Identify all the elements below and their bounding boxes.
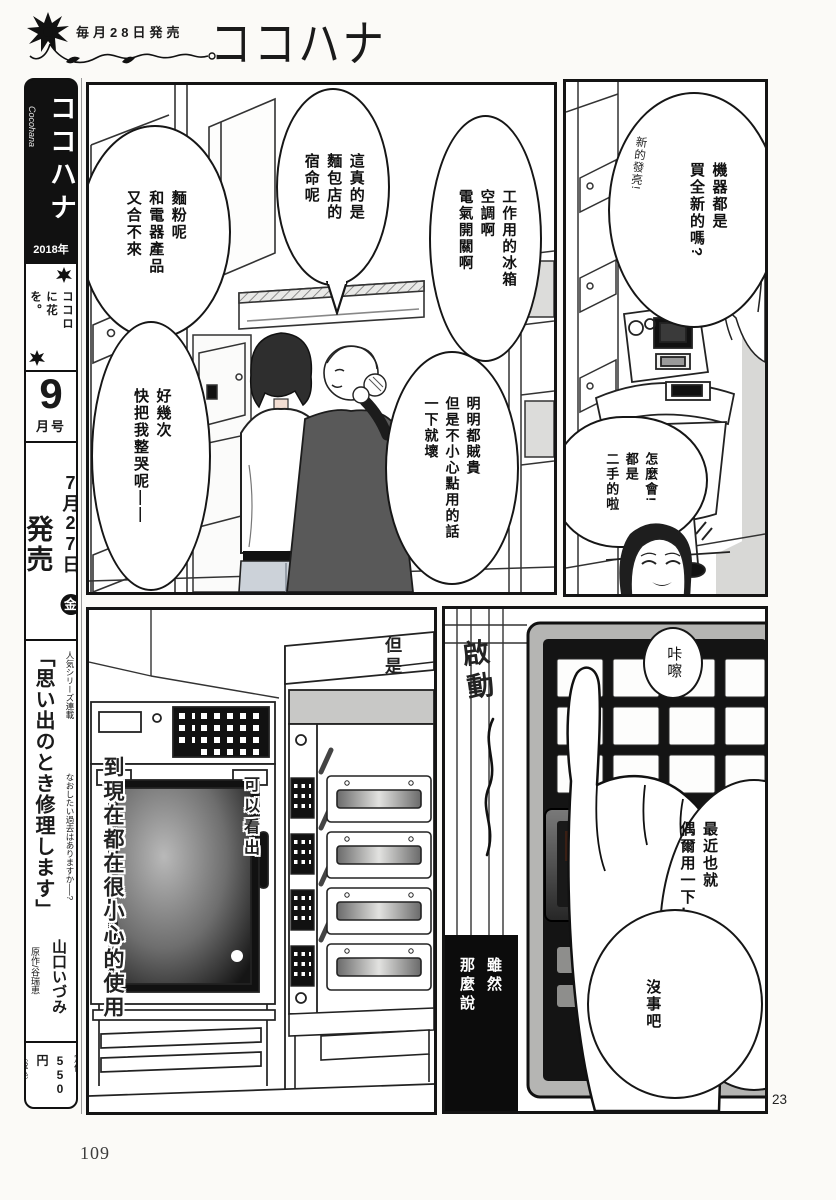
bubble-text: 好幾次 快把我整哭呢—— xyxy=(129,388,174,524)
bubble-text: 麵粉呢 和電器產品 又合不來 xyxy=(121,190,189,275)
page-number-right: 23 xyxy=(772,1092,787,1107)
bubble-text: 最近也就 偶爾用一下… xyxy=(675,821,720,923)
sidebar-date-box: 7月27日 金 発売 xyxy=(24,441,78,641)
flower-icon xyxy=(29,350,45,366)
bubble-text: 咔嚓 xyxy=(662,646,685,680)
panel-bottom-right: 啟動 咔嚓 最近也就 偶爾用一下… 沒事吧 雖然 那麼說 xyxy=(442,606,768,1114)
bubble-text: 沒事吧 xyxy=(641,979,710,1030)
speech-bubble-fate: 這真的是 麵包店的 宿命呢 xyxy=(276,88,390,286)
bubble-text: 這真的是 麵包店的 宿命呢 xyxy=(299,153,367,221)
series-original-author: 原作/谷瑞恵 xyxy=(29,947,42,1027)
sfx-start-squiggle xyxy=(469,717,509,857)
sidebar-slogan-box: ココロに花を。 xyxy=(24,262,78,372)
manga-page: 毎月28日発売 ココハナ ココハナ Cocohana 2018年 ココロに花を。… xyxy=(0,0,836,1200)
page-number-left: 109 xyxy=(80,1143,110,1164)
series-author: 山口いづみ xyxy=(48,939,69,1031)
panel-top-left: 麵粉呢 和電器產品 又合不來 好幾次 快把我整哭呢—— 這真的是 麵包店的 宿命… xyxy=(86,82,557,595)
flower-icon xyxy=(56,267,72,283)
caption-careful-use: 到現在都在很小心的使用 xyxy=(97,756,127,1026)
speech-bubble-fine: 沒事吧 xyxy=(587,909,763,1099)
caption-can-see: 可以看出 xyxy=(237,776,261,860)
sfx-bubble-click: 咔嚓 xyxy=(643,627,703,699)
sidebar-issue-box: 9 月号 xyxy=(24,370,78,443)
issue-number: 9 xyxy=(26,372,76,416)
caption-although: 雖然 那麼說 xyxy=(453,957,507,1014)
weekday-circle: 金 xyxy=(60,594,78,615)
panel-top-right: 機器都是 買全新的嗎? 新的發亮! 怎麼會! 都是 二手的啦 xyxy=(563,79,768,597)
series-note: 人気シリーズ連載 xyxy=(64,651,76,771)
price-column: 定価 550円 〔税込〕 xyxy=(24,1054,78,1096)
speech-bubble-expensive: 明明都賊貴 但是不小心點用的話 一下就壞 xyxy=(385,351,519,585)
series-title: 「思い出のとき修理します」 xyxy=(29,647,58,987)
narration-but: 但是 xyxy=(379,636,404,678)
issue-unit: 月号 xyxy=(26,416,76,435)
smiling-woman-face xyxy=(608,516,718,597)
sidebar-logo-roman: Cocohana xyxy=(27,106,37,147)
price-tax-note: 〔税込〕 xyxy=(24,1054,29,1084)
bubble-text: 明明都賊貴 但是不小心點用的話 一下就壞 xyxy=(421,396,484,540)
sidebar-price-box: 定価 550円 〔税込〕 xyxy=(24,1041,78,1109)
price-label: 定価 xyxy=(73,1054,78,1072)
binding-line xyxy=(81,78,82,1114)
speech-bubble-all-new: 機器都是 買全新的嗎? xyxy=(608,92,768,328)
panel3-artwork xyxy=(89,610,434,1112)
release-date-column: 7月27日 金 発売 xyxy=(24,451,78,639)
bubble-text: 工作用的冰箱 空調啊 電氣開關啊 xyxy=(453,189,518,288)
bubble-text: 怎麼會! 都是 二手的啦 xyxy=(602,452,661,512)
sidebar-series-box: 人気シリーズ連載 「思い出のとき修理します」 なおしたい過去はありますか──? … xyxy=(24,639,78,1043)
sidebar-logo: ココハナ xyxy=(42,94,78,226)
bubble-text: 機器都是 買全新的嗎? xyxy=(659,162,730,258)
speech-bubble-flour: 麵粉呢 和電器產品 又合不來 xyxy=(86,125,231,339)
sidebar-slogan: ココロに花を。 xyxy=(27,291,75,344)
speech-bubble-cry: 好幾次 快把我整哭呢—— xyxy=(91,321,211,591)
flower-icon xyxy=(26,10,246,68)
sidebar-year: 2018年 xyxy=(26,241,76,257)
panel-bottom-left: 但是 可以看出 到現在都在很小心的使用 xyxy=(86,607,437,1115)
sale-label: 発売 xyxy=(24,515,53,575)
price-value: 550円 xyxy=(35,1054,67,1096)
sidebar: ココハナ Cocohana 2018年 ココロに花を。 9 月号 7月27日 金… xyxy=(24,78,78,1109)
release-date: 7月27日 xyxy=(61,473,79,574)
speech-bubble-fate-tail xyxy=(325,281,349,315)
sidebar-logo-box: ココハナ Cocohana 2018年 xyxy=(24,78,78,264)
speech-bubble-appliances: 工作用的冰箱 空調啊 電氣開關啊 xyxy=(429,115,542,362)
